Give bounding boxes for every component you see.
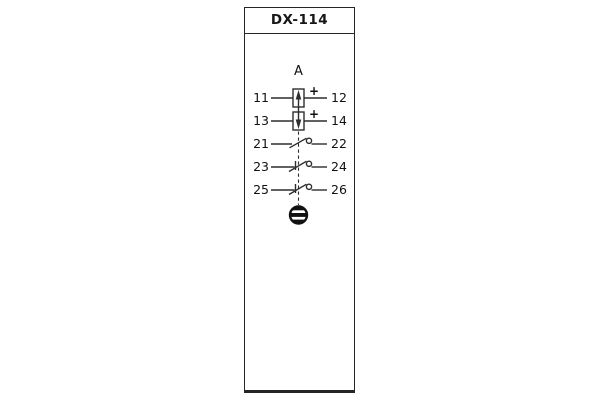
terminal-label-23: 23 <box>245 160 269 174</box>
terminal-label-13: 13 <box>245 114 269 128</box>
canvas: DX-114 A 11 12 + 13 14 + 21 22 23 24 25 … <box>0 0 600 400</box>
panel-title: DX-114 <box>245 8 354 34</box>
terminal-label-25: 25 <box>245 183 269 197</box>
polarity-plus-label: + <box>307 84 321 98</box>
terminal-label-24: 24 <box>331 160 355 174</box>
terminal-label-11: 11 <box>245 91 269 105</box>
terminal-label-26: 26 <box>331 183 355 197</box>
group-label: A <box>288 65 309 79</box>
terminal-label-14: 14 <box>331 114 355 128</box>
terminal-label-22: 22 <box>331 137 355 151</box>
polarity-plus-label: + <box>307 107 321 121</box>
terminal-label-12: 12 <box>331 91 355 105</box>
terminal-label-21: 21 <box>245 137 269 151</box>
